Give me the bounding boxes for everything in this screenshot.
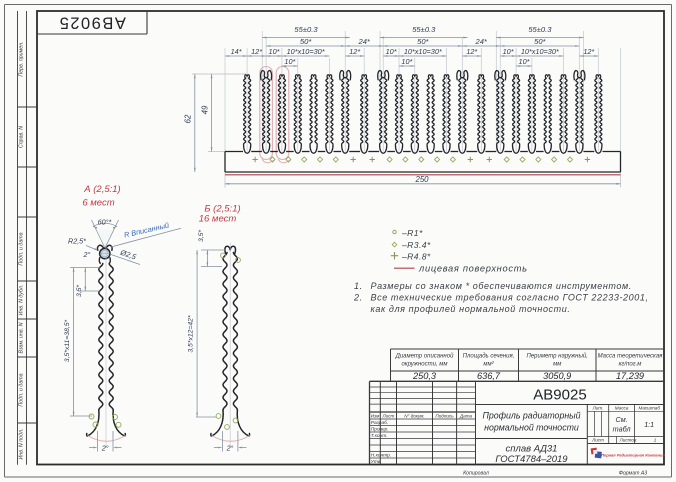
svg-text:55±0.3: 55±0.3 <box>294 25 318 34</box>
svg-text:Лист: Лист <box>591 438 604 443</box>
svg-text:Масса: Масса <box>615 405 629 410</box>
svg-text:3,5*x12=42*: 3,5*x12=42* <box>188 315 195 353</box>
svg-text:55±0.3: 55±0.3 <box>528 25 552 34</box>
svg-text:10*x10=30*: 10*x10=30* <box>521 47 560 56</box>
svg-text:Взам. инв. N: Взам. инв. N <box>18 322 24 353</box>
svg-text:–R3.4*: –R3.4* <box>401 240 431 250</box>
svg-text:10*: 10* <box>284 57 296 66</box>
svg-text:250,3: 250,3 <box>412 371 437 381</box>
svg-text:Листов: Листов <box>619 438 637 443</box>
svg-text:10*: 10* <box>386 47 398 56</box>
svg-text:сплав АД31: сплав АД31 <box>506 444 558 455</box>
svg-text:Подп. и дата: Подп. и дата <box>18 373 24 406</box>
svg-text:Лист: Лист <box>381 413 394 418</box>
svg-text:Инв. N подл.: Инв. N подл. <box>18 429 24 460</box>
svg-text:Справ. N: Справ. N <box>18 126 24 148</box>
svg-text:12*: 12* <box>251 47 263 56</box>
svg-text:250: 250 <box>414 175 429 184</box>
svg-text:Формат А3: Формат А3 <box>619 471 647 477</box>
svg-text:24*: 24* <box>474 37 487 46</box>
svg-text:Н.контр.: Н.контр. <box>371 453 391 459</box>
svg-text:1:1: 1:1 <box>644 420 654 429</box>
svg-text:3,5*: 3,5* <box>76 285 83 297</box>
svg-text:мм²: мм² <box>483 362 494 368</box>
svg-text:Масштаб: Масштаб <box>638 405 660 410</box>
svg-text:55±0.3: 55±0.3 <box>412 25 436 34</box>
svg-text:Изм: Изм <box>371 413 380 418</box>
svg-text:50*: 50* <box>417 37 429 46</box>
svg-text:АВ9025: АВ9025 <box>58 14 126 32</box>
svg-text:50*: 50* <box>534 37 546 46</box>
svg-text:24*: 24* <box>357 37 370 46</box>
svg-text:10*: 10* <box>503 47 515 56</box>
svg-text:2.: 2. <box>353 293 363 303</box>
svg-text:3,5*: 3,5* <box>198 230 205 242</box>
svg-text:Подпись: Подпись <box>435 413 454 418</box>
svg-text:10*x10=30*: 10*x10=30* <box>287 47 326 56</box>
svg-text:N° докум.: N° докум. <box>404 413 424 418</box>
svg-text:10*: 10* <box>401 57 413 66</box>
svg-text:табл: табл <box>613 425 631 434</box>
svg-text:16 мест: 16 мест <box>199 214 237 225</box>
svg-text:2°: 2° <box>83 250 91 259</box>
svg-text:Провер.: Провер. <box>371 427 389 433</box>
svg-text:Профиль радиаторный: Профиль радиаторный <box>482 411 580 421</box>
svg-text:1: 1 <box>654 438 657 443</box>
svg-text:Лит.: Лит. <box>592 405 604 410</box>
svg-text:60°*: 60°* <box>98 218 112 227</box>
svg-text:Утв.: Утв. <box>371 459 382 465</box>
svg-text:Перв. примен.: Перв. примен. <box>18 41 24 76</box>
svg-text:Т.конт.: Т.конт. <box>371 433 388 439</box>
svg-text:Периметр наружный,: Периметр наружный, <box>527 353 588 360</box>
svg-text:12*: 12* <box>583 47 595 56</box>
svg-text:10*: 10* <box>519 57 531 66</box>
svg-text:Дата: Дата <box>459 413 473 418</box>
svg-text:См.: См. <box>616 415 628 424</box>
svg-text:10*x10=30*: 10*x10=30* <box>404 47 443 56</box>
svg-text:3,5*x11=38,5*: 3,5*x11=38,5* <box>64 319 71 362</box>
svg-text:12*: 12* <box>349 47 361 56</box>
svg-text:3050,9: 3050,9 <box>543 371 571 381</box>
svg-text:50*: 50* <box>300 37 312 46</box>
svg-text:Подп. и дата: Подп. и дата <box>18 232 24 265</box>
svg-text:62: 62 <box>184 114 193 123</box>
svg-text:Разраб.: Разраб. <box>371 420 388 426</box>
svg-text:14*: 14* <box>231 47 243 56</box>
svg-text:лицевая поверхность: лицевая поверхность <box>418 264 528 274</box>
svg-text:6 мест: 6 мест <box>82 198 114 209</box>
svg-text:Масса теоретическая: Масса теоретическая <box>598 354 664 360</box>
svg-text:2°: 2° <box>101 444 109 453</box>
svg-text:Размеры со знаком * обеспечива: Размеры со знаком * обеспечиваются инстр… <box>371 281 632 291</box>
svg-text:R2,5*: R2,5* <box>68 237 86 246</box>
svg-text:ГОСТ4784–2019: ГОСТ4784–2019 <box>495 454 568 465</box>
svg-text:А (2,5:1): А (2,5:1) <box>83 184 120 195</box>
svg-text:окружности, мм: окружности, мм <box>401 362 447 368</box>
svg-text:2°: 2° <box>226 444 234 453</box>
svg-text:–R1*: –R1* <box>401 228 423 238</box>
svg-text:нормальной точности: нормальной точности <box>484 423 579 433</box>
svg-text:Первая Радиаторная Компания: Первая Радиаторная Компания <box>601 453 665 458</box>
svg-text:Все технические требования сог: Все технические требования согласно ГОСТ… <box>371 293 649 303</box>
svg-text:12*: 12* <box>466 47 478 56</box>
svg-text:мм: мм <box>553 362 561 368</box>
svg-text:10*: 10* <box>269 47 281 56</box>
svg-text:R Вписанный: R Вписанный <box>123 221 170 240</box>
svg-text:Диаметр описанной: Диаметр описанной <box>395 353 454 360</box>
svg-text:АВ9025: АВ9025 <box>533 387 586 404</box>
svg-text:Площадь сечения,: Площадь сечения, <box>463 354 515 360</box>
svg-text:17,239: 17,239 <box>616 371 644 381</box>
svg-text:–R4.8*: –R4.8* <box>401 252 431 262</box>
svg-text:636,7: 636,7 <box>477 371 501 381</box>
svg-text:Инв. N дубл.: Инв. N дубл. <box>18 285 24 316</box>
svg-text:кг/пог.м: кг/пог.м <box>619 362 642 368</box>
svg-text:1.: 1. <box>354 281 363 291</box>
svg-text:Ø2,5: Ø2,5 <box>118 247 138 261</box>
svg-text:Копировал: Копировал <box>463 471 489 477</box>
svg-text:49: 49 <box>200 105 209 114</box>
svg-text:как для профилей нормальной то: как для профилей нормальной точности. <box>371 304 571 314</box>
